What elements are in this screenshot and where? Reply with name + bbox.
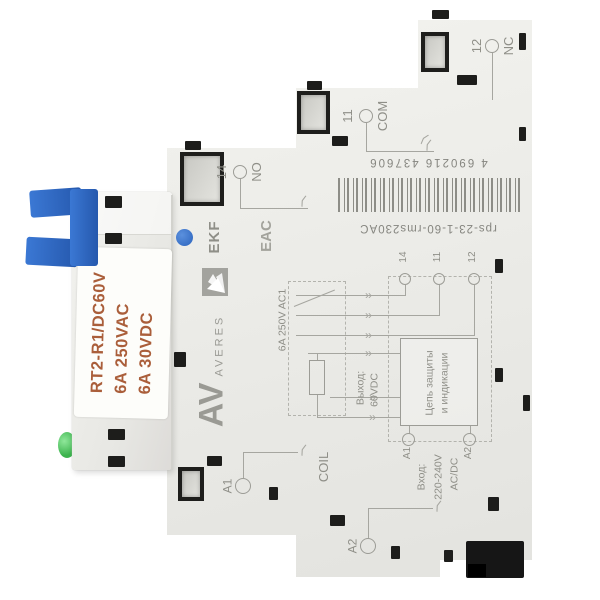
- terminal-com-label: COM: [376, 101, 390, 131]
- relay-model: RT2-R1/DC60V: [88, 271, 110, 393]
- marking-line: [368, 508, 369, 538]
- ekf-wordmark: EKF: [207, 221, 223, 254]
- vent-slot: [307, 81, 322, 90]
- barcode-digits: 4 690216 437606: [336, 156, 520, 168]
- schematic-line: [296, 335, 475, 336]
- vent-slot: [391, 546, 400, 559]
- terminal-a2-circle: [360, 538, 376, 554]
- contact-arrow-icon: ››: [369, 410, 375, 424]
- relay-rating-ac: 6A 250VAC: [112, 272, 134, 394]
- terminal-no-circle: [233, 165, 247, 179]
- vent-slot: [495, 368, 503, 382]
- schematic-line: [296, 295, 406, 296]
- vent-slot: [105, 233, 122, 244]
- vent-slot: [207, 456, 222, 466]
- screw-terminal-nc: [421, 32, 449, 72]
- relay-rating-dc: 6A 30VDC: [136, 273, 158, 395]
- schematic-circle-11: [433, 273, 445, 285]
- schematic-line: [317, 353, 318, 360]
- terminal-a1-circle: [235, 478, 251, 494]
- vent-slot: [523, 395, 530, 411]
- vent-slot: [457, 75, 477, 85]
- schematic-protection-line1: Цепь защиты: [424, 350, 435, 415]
- vent-slot: [269, 487, 278, 500]
- schematic-input-type: AC/DC: [449, 458, 460, 491]
- screw-terminal-com: [297, 91, 330, 134]
- schematic-output-value: 60VDC: [369, 373, 380, 407]
- terminal-nc-label: NC: [502, 37, 516, 56]
- terminal-nc-number: 12: [470, 39, 484, 53]
- vent-slot: [519, 127, 526, 141]
- product-code: rps-23-1-60-rms230AC: [336, 222, 520, 234]
- marking-line: [240, 208, 308, 209]
- din-clip-spine[interactable]: [70, 189, 98, 266]
- schematic-protection-line2: и индикации: [439, 353, 450, 414]
- coil-label: COIL: [317, 452, 331, 482]
- eac-mark: EAC: [259, 220, 275, 252]
- barcode-bars-icon: [336, 178, 520, 212]
- vent-slot: [185, 141, 201, 150]
- contact-arrow-icon: ››: [365, 328, 371, 342]
- vent-slot: [108, 429, 125, 440]
- vent-slot: [495, 259, 503, 273]
- vent-slot: [488, 497, 499, 511]
- averes-name: AVERES: [214, 315, 226, 377]
- schematic-circle-14: [399, 273, 411, 285]
- terminal-a2-label: A2: [347, 539, 360, 554]
- vent-slot: [174, 352, 186, 367]
- marking-line: [368, 508, 433, 509]
- ekf-logo-icon: [202, 268, 228, 296]
- vent-slot: [332, 136, 348, 146]
- schematic-terminal-a1: A1: [403, 447, 414, 459]
- schematic-terminal-14: 14: [399, 251, 410, 262]
- schematic-line: [439, 285, 440, 315]
- vent-slot: [519, 33, 526, 50]
- relay-socket-seam: [171, 195, 173, 470]
- terminal-nc-circle: [485, 39, 499, 53]
- schematic-output-label: Выход:: [355, 371, 366, 405]
- marking-line: [492, 53, 493, 100]
- schematic-input-value: 220-240V: [433, 454, 444, 500]
- schematic-terminal-12: 12: [468, 251, 479, 262]
- schematic-terminal-11: 11: [433, 252, 444, 262]
- vent-slot: [330, 515, 345, 526]
- terminal-com-circle: [359, 109, 373, 123]
- schematic-line: [308, 353, 400, 354]
- schematic-contact-rating: 6A 250V AC1: [277, 289, 288, 351]
- status-indicator-dot: [176, 229, 193, 246]
- terminal-no-number: 14: [215, 165, 229, 179]
- schematic-line: [317, 395, 318, 417]
- terminal-a1-label: A1: [222, 479, 235, 494]
- marking-line: [243, 452, 244, 478]
- vent-slot: [105, 196, 122, 208]
- marking-line: [366, 123, 367, 152]
- contact-arrow-icon: ››: [365, 308, 371, 322]
- marking-line: [240, 179, 241, 209]
- relay-label-text: RT2-R1/DC60V 6A 250VAC 6A 30VDC: [88, 271, 158, 394]
- schematic-input-label: Вход:: [416, 464, 427, 491]
- schematic-line: [405, 285, 406, 295]
- vent-slot: [444, 550, 453, 562]
- schematic-line: [317, 417, 400, 418]
- averes-logo: AV AVERES: [193, 315, 232, 428]
- contact-arrow-icon: ››: [365, 346, 371, 360]
- vent-slot: [108, 456, 125, 467]
- schematic-circle-a2: [463, 433, 476, 446]
- terminal-com-number: 11: [341, 109, 355, 123]
- schematic-circle-12: [468, 273, 480, 285]
- screw-terminal-coil: [178, 467, 204, 501]
- schematic-terminal-a2: A2: [464, 447, 475, 459]
- din-latch-notch: [468, 564, 486, 577]
- vent-slot: [432, 10, 449, 19]
- schematic-circle-a1: [402, 433, 415, 446]
- contact-arrow-icon: ››: [365, 288, 371, 302]
- terminal-no-label: NO: [250, 162, 264, 182]
- schematic-coil: [309, 360, 325, 395]
- schematic-line: [474, 285, 475, 335]
- relay-label: RT2-R1/DC60V 6A 250VAC 6A 30VDC: [74, 247, 172, 419]
- product-photo-relay-module: RT2-R1/DC60V 6A 250VAC 6A 30VDC EKF EAC …: [0, 0, 600, 600]
- marking-line: [243, 452, 298, 453]
- barcode-block: rps-23-1-60-rms230AC 4 690216 437606: [336, 156, 520, 234]
- averes-abbr: AV: [193, 383, 232, 428]
